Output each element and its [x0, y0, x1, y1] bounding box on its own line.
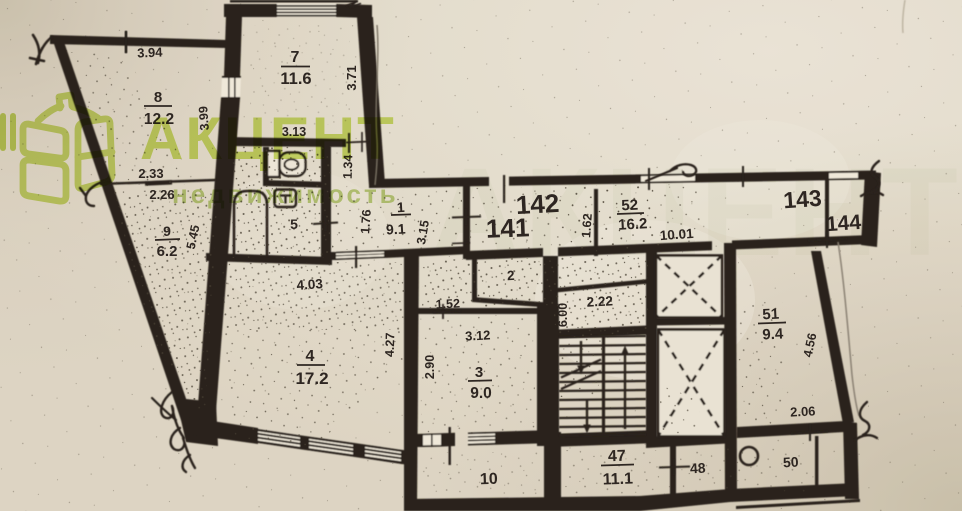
svg-text:1.62: 1.62 — [579, 213, 595, 238]
svg-text:143: 143 — [782, 185, 822, 214]
svg-text:142: 142 — [515, 188, 560, 220]
svg-text:52: 52 — [621, 197, 639, 215]
svg-text:51: 51 — [762, 306, 780, 324]
svg-text:4.27: 4.27 — [383, 332, 398, 357]
svg-text:3.94: 3.94 — [137, 45, 164, 61]
svg-text:10: 10 — [480, 471, 498, 489]
svg-text:3.12: 3.12 — [465, 327, 491, 343]
svg-text:2.26: 2.26 — [149, 187, 174, 202]
svg-text:17.2: 17.2 — [295, 369, 328, 388]
svg-text:3.71: 3.71 — [344, 65, 359, 90]
svg-text:9.1: 9.1 — [386, 220, 406, 237]
svg-text:2.90: 2.90 — [423, 355, 437, 379]
svg-text:1.76: 1.76 — [358, 209, 374, 234]
svg-text:2.22: 2.22 — [586, 293, 613, 309]
svg-text:16.2: 16.2 — [618, 215, 648, 234]
svg-text:9.0: 9.0 — [470, 385, 492, 402]
svg-text:50: 50 — [783, 454, 800, 471]
svg-text:4: 4 — [306, 348, 315, 365]
svg-text:48: 48 — [690, 460, 707, 477]
svg-text:9: 9 — [163, 223, 171, 239]
svg-text:1.52: 1.52 — [435, 296, 460, 311]
svg-text:10.01: 10.01 — [659, 226, 694, 243]
svg-text:11.6: 11.6 — [280, 70, 311, 88]
svg-text:6.2: 6.2 — [157, 243, 178, 260]
svg-text:недвижимость: недвижимость — [172, 179, 399, 209]
svg-text:47: 47 — [608, 448, 626, 466]
svg-text:2: 2 — [507, 268, 515, 283]
svg-text:8: 8 — [154, 89, 162, 106]
svg-text:2.06: 2.06 — [790, 403, 816, 419]
svg-text:9.4: 9.4 — [762, 325, 784, 343]
svg-text:АКЦЕНТ: АКЦЕНТ — [140, 105, 396, 172]
svg-text:11.1: 11.1 — [602, 470, 633, 488]
svg-text:5: 5 — [290, 216, 298, 232]
svg-text:144: 144 — [825, 211, 862, 236]
svg-text:4.03: 4.03 — [296, 276, 324, 293]
svg-text:7: 7 — [291, 49, 300, 66]
svg-text:6.00: 6.00 — [556, 303, 570, 327]
svg-text:3: 3 — [475, 364, 483, 381]
